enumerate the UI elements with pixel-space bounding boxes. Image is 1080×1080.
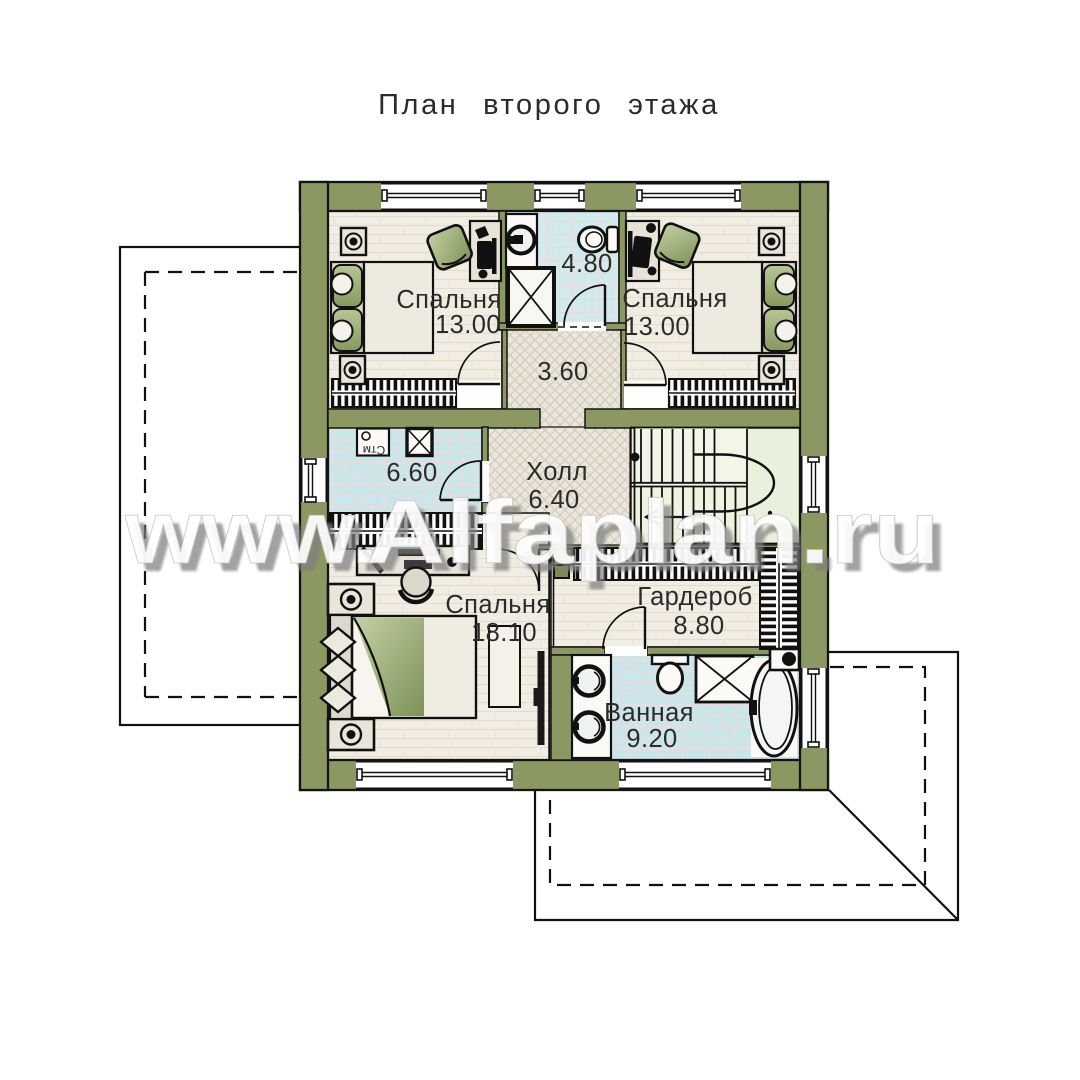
svg-text:8.80: 8.80 — [673, 612, 724, 640]
svg-text:13.00: 13.00 — [624, 313, 690, 341]
svg-text:Спальня: Спальня — [396, 286, 501, 314]
svg-text:www.: www. — [124, 483, 379, 583]
svg-text:Спальня: Спальня — [445, 591, 550, 619]
svg-text:18.10: 18.10 — [471, 619, 537, 647]
svg-text:План второго этажа: План второго этажа — [378, 89, 720, 121]
svg-text:9.20: 9.20 — [626, 725, 677, 753]
svg-text:3.60: 3.60 — [537, 358, 588, 386]
svg-text:Спальня: Спальня — [622, 285, 727, 313]
svg-text:Ванная: Ванная — [604, 699, 694, 727]
svg-text:Стм: Стм — [363, 443, 385, 457]
svg-text:Alfaplan.ru: Alfaplan.ru — [366, 482, 940, 582]
svg-text:4.80: 4.80 — [561, 250, 612, 278]
svg-text:13.00: 13.00 — [435, 311, 501, 339]
